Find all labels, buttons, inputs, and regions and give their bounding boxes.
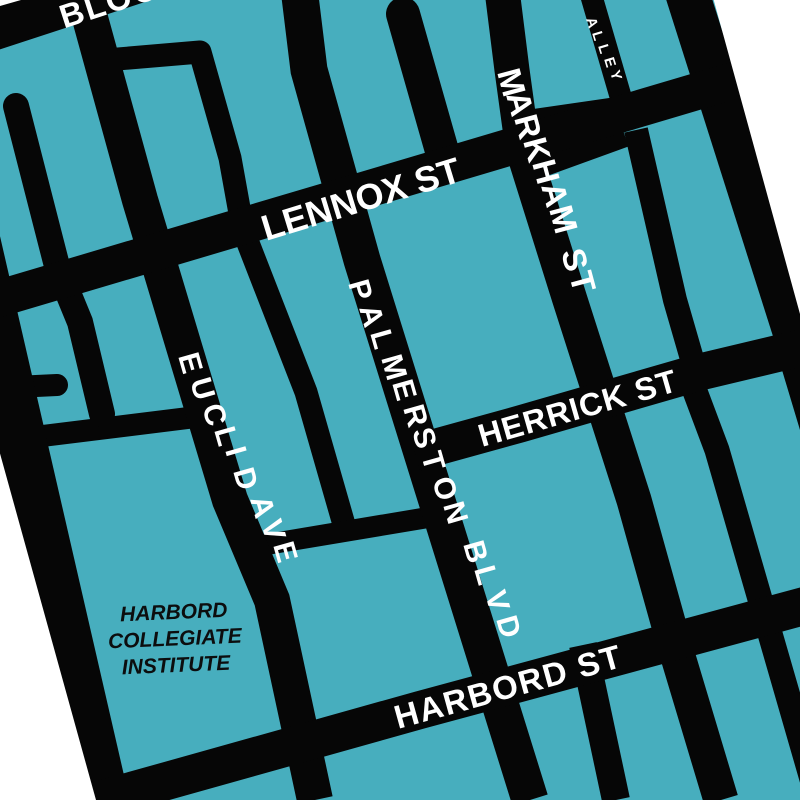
svg-text:INSTITUTE: INSTITUTE — [121, 652, 231, 680]
svg-text:HARBORD: HARBORD — [120, 599, 228, 627]
